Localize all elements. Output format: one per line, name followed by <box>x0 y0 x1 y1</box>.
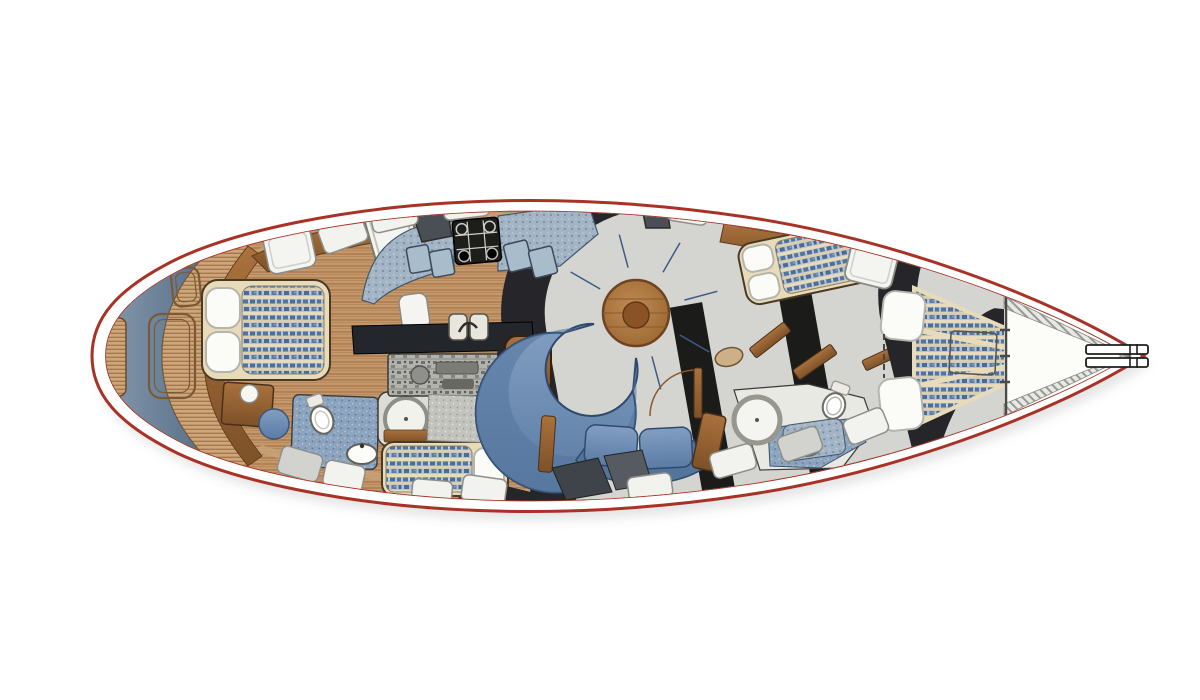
yacht-deck-plan-image <box>0 0 1200 700</box>
owner-berth <box>202 280 330 380</box>
pillow <box>206 288 240 328</box>
engine-pulley <box>411 366 429 384</box>
deck-plan-canvas <box>0 0 1200 700</box>
cutting-board <box>406 244 432 273</box>
engine-sump <box>442 379 474 389</box>
bowsprit-rail <box>1086 345 1148 354</box>
loveseat-cushion <box>639 427 693 470</box>
pillow <box>206 332 240 372</box>
stove-burners <box>452 217 502 265</box>
galley-sink <box>470 314 488 340</box>
engine-manifold <box>436 362 478 374</box>
cutting-board <box>429 248 455 277</box>
hanging-locker-port-guest <box>298 484 1054 700</box>
shower-stall <box>734 397 780 443</box>
vanity-stool <box>259 409 289 439</box>
basin-faucet <box>360 444 364 448</box>
bowsprit-rail <box>1086 358 1148 367</box>
door-leaf <box>694 368 702 418</box>
galley-sink <box>449 314 467 340</box>
